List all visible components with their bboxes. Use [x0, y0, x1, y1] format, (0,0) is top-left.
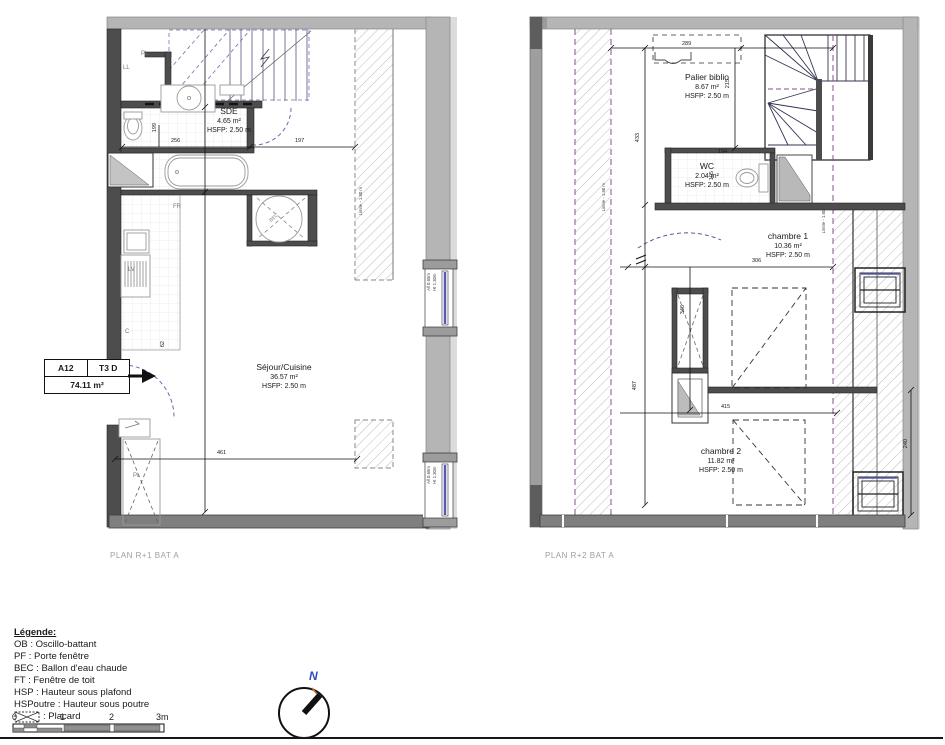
room-name: Séjour/Cuisine [223, 362, 345, 373]
sheet-bottom-rule [0, 737, 943, 739]
room-name: chambre 2 [671, 446, 771, 457]
legend-item: PF : Porte fenêtre [14, 651, 149, 663]
unit-info-row: A12 T3 D [45, 360, 129, 377]
unit-info-box: A12 T3 D 74.11 m² [44, 359, 130, 394]
legend-item: FT : Fenêtre de toit [14, 675, 149, 687]
floorplan-sheet: SDE 4.65 m² HSFP: 2.50 m Séjour/Cuisine … [0, 0, 945, 745]
room-label-chambre1: chambre 1 10.36 m² HSFP: 2.50 m [738, 231, 838, 260]
plan-r1-drawing [105, 15, 465, 540]
dim-433: 433 [635, 133, 641, 142]
dim-199: 199 [152, 123, 158, 132]
room-label-sejour: Séjour/Cuisine 36.57 m² HSFP: 2.50 m [223, 362, 345, 391]
dim-240: 240 [903, 439, 909, 448]
room-label-wc: WC 2.04 m² HSFP: 2.50 m [676, 161, 738, 190]
room-label-chambre2: chambre 2 11.82 m² HSFP: 2.50 m [671, 446, 771, 475]
caption-plan-r2: PLAN R+2 BAT A [545, 551, 614, 560]
room-height: HSFP: 2.50 m [676, 181, 738, 190]
north-label: N [309, 669, 318, 683]
north-compass-icon [276, 684, 336, 740]
dim-415: 415 [721, 404, 730, 410]
scale-0: 0 [12, 712, 17, 722]
window-label-2: All 0.65m Ht 1.30m [426, 466, 437, 484]
room-area: 11.82 m² [671, 457, 771, 466]
legend-item: BEC : Ballon d'eau chaude [14, 663, 149, 675]
room-name: SDE [185, 106, 273, 117]
room-height: HSFP: 2.50 m [185, 126, 273, 135]
label-lave-linge: LL [123, 65, 130, 71]
dim-197: 197 [295, 138, 304, 144]
scale-2: 2 [109, 712, 114, 722]
plan-r1: SDE 4.65 m² HSFP: 2.50 m Séjour/Cuisine … [105, 15, 465, 540]
dim-487: 487 [632, 381, 638, 390]
room-area: 36.57 m² [223, 373, 345, 382]
dim-215: 215 [725, 79, 731, 88]
label-frigo: FR [173, 204, 181, 210]
dim-105: 105 [709, 171, 715, 180]
unit-arrow-icon [128, 366, 156, 386]
dim-256: 256 [171, 138, 180, 144]
dim-194: 194 [718, 149, 727, 155]
scale-1: 1 [60, 712, 65, 722]
legend-item: OB : Oscillo-battant [14, 639, 149, 651]
window-allege: All 0.65m [426, 273, 431, 291]
unit-code: A12 [45, 360, 88, 376]
room-area: 2.04 m² [676, 172, 738, 181]
dim-306: 306 [752, 258, 761, 264]
room-height: HSFP: 2.50 m [671, 466, 771, 475]
dim-461: 461 [217, 450, 226, 456]
label-lave-vaisselle: LV [128, 267, 135, 273]
room-area: 10.36 m² [738, 242, 838, 251]
window-label-1: All 0.65m Ht 1.30m [426, 273, 437, 291]
room-name: WC [676, 161, 738, 172]
plan-r2: Palier biblio 8.67 m² HSFP: 2.50 m WC 2.… [525, 15, 920, 540]
label-placard-top: PL [141, 51, 148, 57]
legend-item: HSPoutre : Hauteur sous poutre [14, 699, 149, 711]
limit-label-right: Limite - 1.80 m [821, 205, 826, 233]
legend-item: HSP : Hauteur sous plafond [14, 687, 149, 699]
dim-346: 346 [680, 305, 686, 314]
unit-area: 74.11 m² [45, 377, 129, 393]
limit-label: Limite - 1.80 m [358, 187, 363, 215]
room-label-sde: SDE 4.65 m² HSFP: 2.50 m [185, 106, 273, 135]
window-hauteur: Ht 1.30m [432, 466, 437, 484]
label-placard-bottom: PL [133, 473, 140, 479]
caption-plan-r1: PLAN R+1 BAT A [110, 551, 179, 560]
limit-label-left: Limite - 1.80 m [601, 183, 606, 211]
dim-62: 62 [160, 341, 166, 347]
room-height: HSFP: 2.50 m [223, 382, 345, 391]
legend-title: Légende: [14, 627, 149, 639]
window-allege: All 0.65m [426, 466, 431, 484]
window-hauteur: Ht 1.30m [432, 273, 437, 291]
scale-3m: 3m [156, 712, 169, 722]
scale-bar-graphic [12, 723, 166, 733]
room-label-palier: Palier biblio 8.67 m² HSFP: 2.50 m [657, 72, 757, 101]
room-area: 4.65 m² [185, 117, 273, 126]
scale-bar: 0 1 2 3m [12, 712, 182, 736]
unit-type: T3 D [88, 360, 130, 376]
label-cuisine-c: C [125, 329, 129, 335]
legend: Légende: OB : Oscillo-battant PF : Porte… [14, 627, 149, 723]
room-name: Palier biblio [657, 72, 757, 83]
dim-289: 289 [682, 41, 691, 47]
room-area: 8.67 m² [657, 83, 757, 92]
room-height: HSFP: 2.50 m [657, 92, 757, 101]
